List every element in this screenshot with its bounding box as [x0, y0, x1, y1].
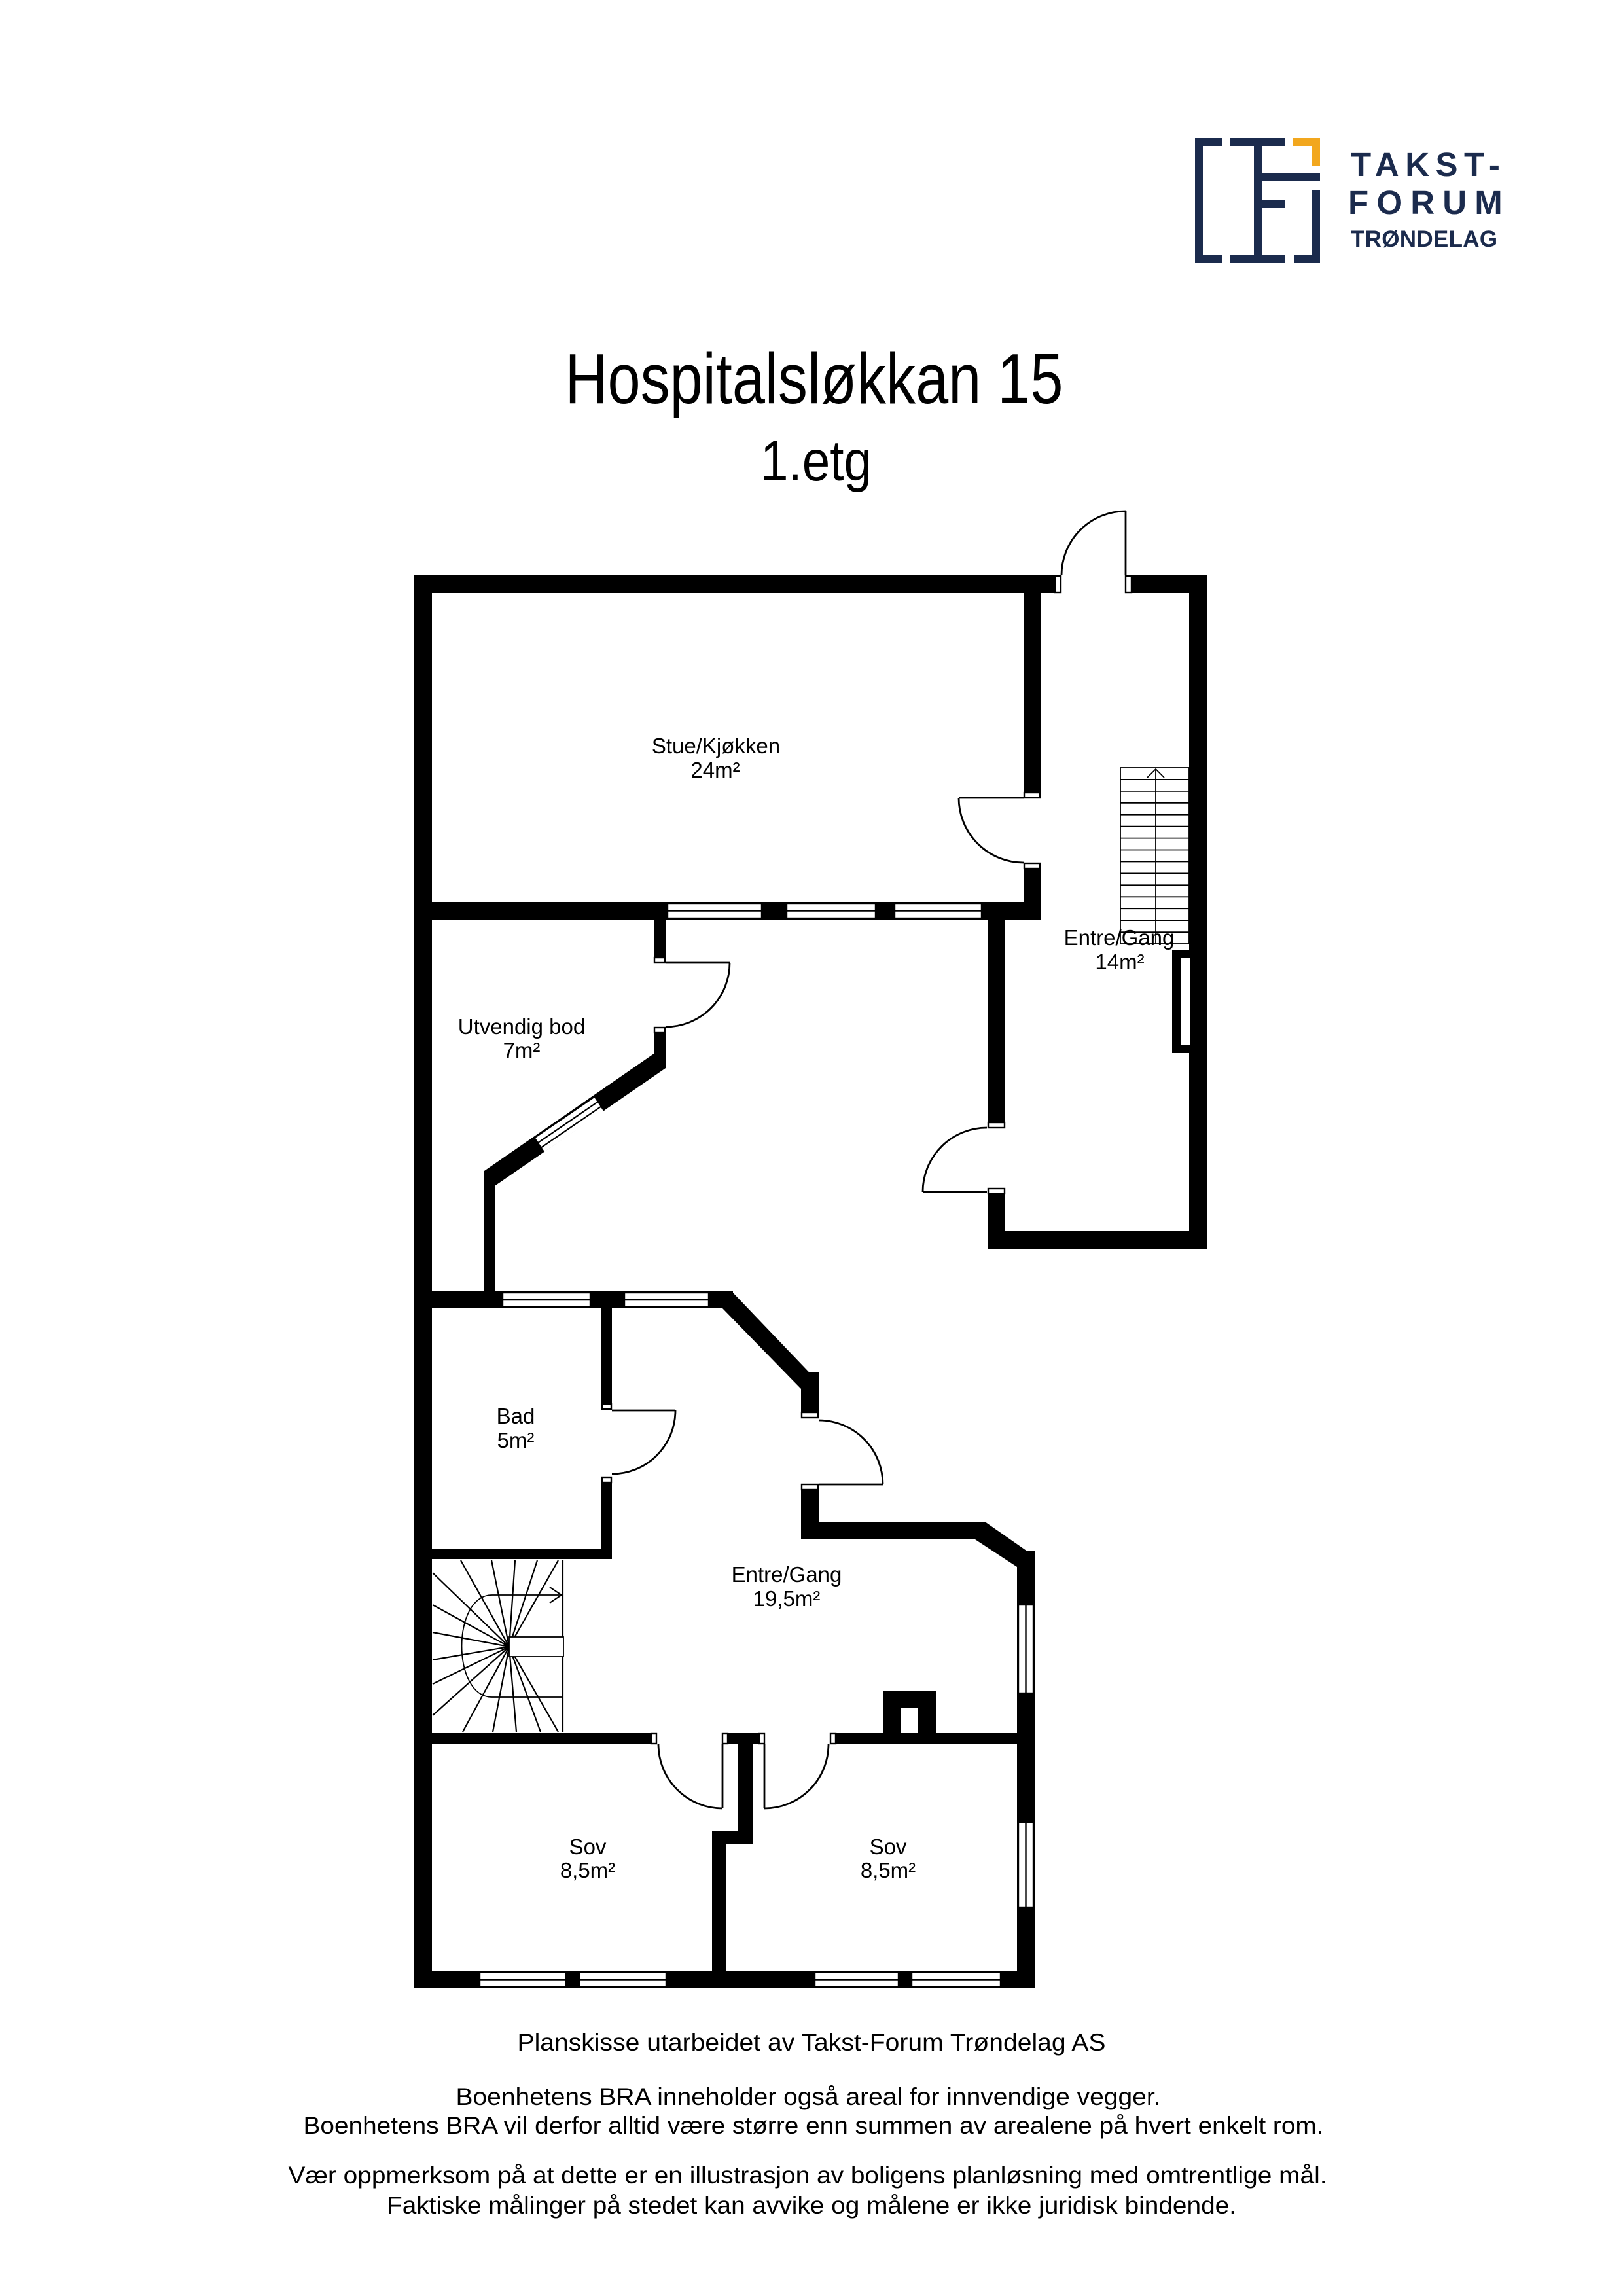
- svg-text:8,5m²: 8,5m²: [560, 1858, 615, 1882]
- svg-text:Vær oppmerksom på at dette er: Vær oppmerksom på at dette er en illustr…: [289, 2162, 1327, 2189]
- svg-text:Hospitalsløkkan 15: Hospitalsløkkan 15: [565, 339, 1063, 419]
- svg-text:Entre/Gang: Entre/Gang: [732, 1562, 842, 1587]
- svg-text:Stue/Kjøkken: Stue/Kjøkken: [652, 734, 780, 758]
- svg-text:Faktiske målinger på stedet ka: Faktiske målinger på stedet kan avvike o…: [387, 2192, 1236, 2219]
- svg-text:Planskisse utarbeidet av Takst: Planskisse utarbeidet av Takst-Forum Trø…: [518, 2029, 1106, 2056]
- svg-text:Utvendig bod: Utvendig bod: [458, 1014, 585, 1039]
- svg-text:1.etg: 1.etg: [760, 429, 872, 493]
- svg-text:Sov: Sov: [870, 1835, 907, 1859]
- svg-text:8,5m²: 8,5m²: [861, 1858, 916, 1882]
- svg-text:FORUM: FORUM: [1348, 184, 1510, 221]
- svg-text:TAKST-: TAKST-: [1351, 146, 1506, 183]
- svg-text:7m²: 7m²: [503, 1038, 541, 1062]
- svg-text:Entre/Gang: Entre/Gang: [1064, 925, 1175, 950]
- svg-text:14m²: 14m²: [1095, 950, 1144, 974]
- svg-text:24m²: 24m²: [690, 758, 740, 782]
- svg-text:19,5m²: 19,5m²: [753, 1587, 821, 1611]
- svg-text:TRØNDELAG: TRØNDELAG: [1351, 226, 1497, 252]
- svg-text:Bad: Bad: [497, 1404, 535, 1428]
- svg-text:Boenhetens BRA inneholder også: Boenhetens BRA inneholder også areal for…: [456, 2083, 1161, 2110]
- svg-text:Boenhetens BRA vil derfor allt: Boenhetens BRA vil derfor alltid være st…: [304, 2112, 1324, 2139]
- svg-text:5m²: 5m²: [497, 1428, 535, 1452]
- svg-text:Sov: Sov: [569, 1835, 607, 1859]
